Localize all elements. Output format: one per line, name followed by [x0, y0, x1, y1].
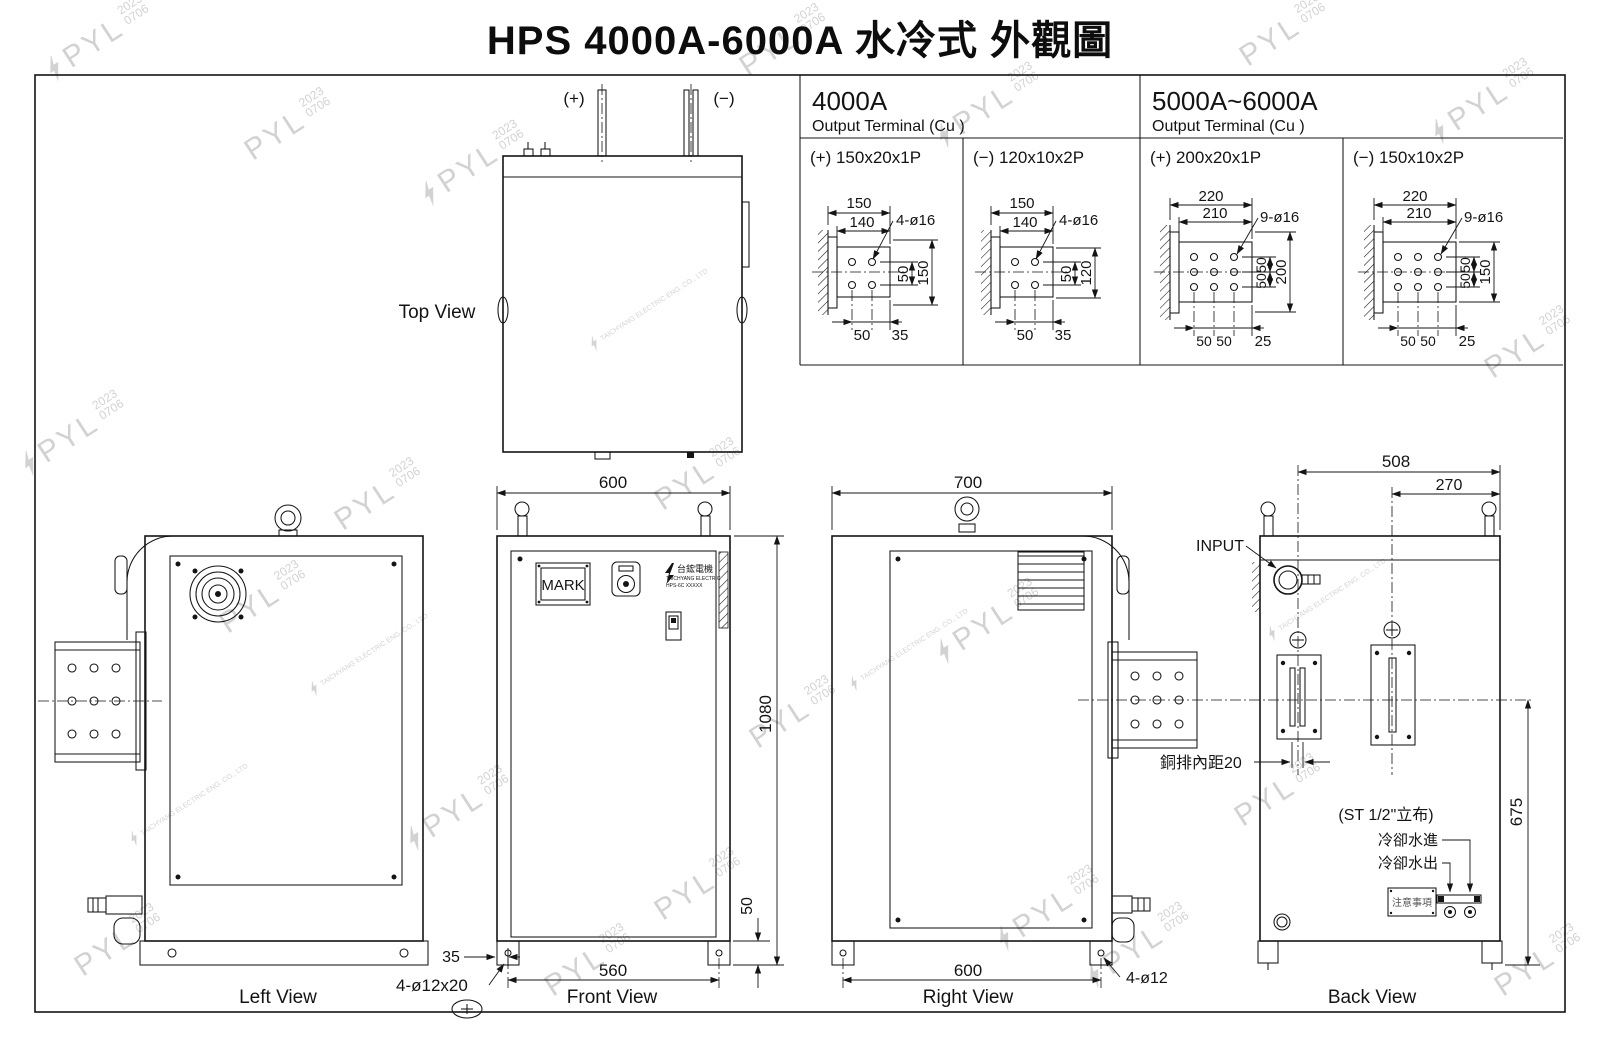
dim-hpitch2: 50 [1420, 333, 1436, 349]
dim-width2: 140 [849, 214, 874, 231]
model-5000a-subtitle: Output Terminal (Cu ) [1152, 118, 1305, 135]
dim-width: 700 [954, 473, 982, 492]
dim-bolt-span: 560 [599, 961, 627, 980]
dim-hedge: 25 [1459, 333, 1476, 350]
dim-width: 600 [599, 473, 627, 492]
dim-vpitch: 50 [1457, 257, 1473, 273]
holes-callout: 4-ø16 [896, 212, 935, 229]
dim-width2: 140 [1012, 214, 1037, 231]
output-terminal-plate [38, 632, 162, 770]
terminal-detail-4000a-negative: (−) 120x10x2P 150 140 4-ø16 50 [973, 148, 1101, 344]
model-5000a: 5000A~6000A [1152, 86, 1318, 116]
busbar-plate [1000, 247, 1053, 297]
left-view: Left View [38, 505, 428, 1008]
lifting-eye [275, 505, 301, 531]
foot [1258, 941, 1278, 963]
terminal-detail-4000a-positive: (+) 150x20x1P 150 140 4-ø16 50 [810, 148, 938, 344]
dim-width2: 210 [1202, 205, 1227, 222]
right-view: 700 [832, 473, 1534, 1008]
back-view-label: Back View [1328, 987, 1417, 1008]
wall-hatch [818, 230, 828, 315]
cabinet-top-outline [503, 156, 742, 452]
dim-voverall: 150 [1477, 259, 1494, 284]
dim-width: 220 [1402, 188, 1427, 205]
brand-name: 台鋐電機 [677, 563, 713, 574]
cell-label: (+) 200x20x1P [1150, 148, 1261, 167]
holes-callout: 9-ø16 [1464, 209, 1503, 226]
eye-bolt [1482, 502, 1496, 516]
dim-width2: 210 [1406, 205, 1431, 222]
top-view-label: Top View [399, 302, 476, 323]
pipe-note: (ST 1/2"立布) [1338, 806, 1433, 824]
front-edge-arc [127, 536, 173, 582]
terminal-detail-5000a-positive: (+) 200x20x1P 220 210 9-ø16 [1150, 148, 1299, 350]
input-port [1274, 566, 1320, 594]
dim-width: 150 [846, 195, 871, 212]
anchor-bolt [400, 949, 408, 957]
notice-plate: 注意事項 [1388, 888, 1436, 916]
dim-foot-offset: 35 [442, 949, 460, 966]
water-out-label: 冷卻水出 [1378, 855, 1438, 872]
louver-strip [1252, 562, 1260, 612]
dim-vpitch: 50 [1253, 257, 1269, 273]
dim-pos-edge: 270 [1436, 477, 1463, 494]
drawing-canvas: 4000A Output Terminal (Cu ) 5000A~6000A … [0, 0, 1600, 1047]
mark-plate: MARK [536, 563, 590, 605]
dim-hpitch2: 50 [1216, 333, 1232, 349]
left-view-label: Left View [239, 987, 317, 1008]
foot [1482, 941, 1502, 963]
dim-hpitch: 50 [854, 327, 871, 344]
water-ports [1437, 895, 1481, 918]
dim-hedge: 35 [892, 327, 909, 344]
cell-label: (−) 150x10x2P [1353, 148, 1464, 167]
front-edge-arc [1083, 536, 1129, 582]
door-bracket [115, 556, 127, 594]
anchor-bolt [168, 949, 176, 957]
back-view: 508 270 INPUT [1160, 452, 1540, 1008]
power-button[interactable] [612, 562, 640, 596]
brand-model: HPS-6C XXXXX [666, 583, 703, 589]
dim-vpitch2: 50 [1457, 273, 1473, 289]
dim-width: 150 [1009, 195, 1034, 212]
dim-terminal-height: 675 [1507, 798, 1526, 826]
dim-voverall: 150 [915, 260, 932, 285]
terminal-table: 4000A Output Terminal (Cu ) 5000A~6000A … [800, 75, 1563, 365]
front-view: 600 MARK 台鋐電機 TAICHYANG E [396, 473, 784, 1018]
dim-height: 1080 [756, 695, 775, 733]
drain-port [1274, 914, 1290, 930]
positive-label: (+) [563, 89, 584, 108]
wall-hatch [981, 230, 991, 315]
front-door [511, 551, 716, 937]
positive-terminal-marker [452, 1000, 482, 1018]
brand-company: TAICHYANG ELECTRIC [666, 576, 721, 582]
dim-hpitch: 50 [1400, 333, 1416, 349]
dim-hpitch: 50 [1017, 327, 1034, 344]
brand-nameplate: 台鋐電機 TAICHYANG ELECTRIC HPS-6C XXXXX [665, 563, 721, 589]
vent-grille [1018, 552, 1084, 610]
dim-neg-edge: 508 [1382, 452, 1410, 471]
foot-bolt-callout: 4-ø12 [1126, 970, 1168, 987]
dim-foot-height: 50 [739, 897, 756, 915]
input-label: INPUT [1196, 538, 1244, 555]
negative-label: (−) [713, 89, 734, 108]
door-bracket [1117, 556, 1129, 594]
busbar-plate [837, 247, 890, 297]
busbar-gap-label: 銅排內距20 [1160, 754, 1242, 772]
dim-voverall: 120 [1078, 260, 1095, 285]
eye-bolt [698, 502, 712, 516]
cabinet-outline [497, 536, 730, 941]
louver-strip [719, 552, 728, 628]
lifting-eye [955, 497, 979, 521]
water-fitting [1112, 896, 1150, 942]
foot-bolt-callout: 4-ø12x20 [396, 976, 468, 995]
wall-hatch [1364, 225, 1374, 320]
dim-vpitch2: 50 [1253, 273, 1269, 289]
top-view: (+) (−) Top View [399, 84, 749, 459]
cell-label: (+) 150x20x1P [810, 148, 921, 167]
dim-voverall: 200 [1273, 259, 1290, 284]
positive-busbar-slot-plate [1371, 645, 1415, 745]
cabinet-outline [145, 536, 423, 941]
dim-width: 220 [1198, 188, 1223, 205]
negative-busbar [693, 90, 698, 156]
cell-label: (−) 120x10x2P [973, 148, 1084, 167]
negative-busbar-slot-plate [1277, 655, 1321, 739]
eye-bolt [515, 502, 529, 516]
base [140, 941, 428, 965]
notice-label: 注意事項 [1392, 896, 1432, 909]
holes-callout: 9-ø16 [1260, 209, 1299, 226]
right-view-label: Right View [923, 987, 1014, 1008]
water-fitting [88, 896, 142, 944]
dim-bolt-span: 600 [954, 961, 982, 980]
water-in-label: 冷卻水進 [1378, 832, 1438, 849]
mark-label: MARK [541, 577, 584, 594]
front-view-label: Front View [567, 987, 658, 1008]
positive-terminal-symbol [1384, 622, 1400, 638]
drawing-sheet: PYL20230706 PYL20230706 PYL20230706 PYL2… [0, 0, 1600, 1047]
fan-icon [190, 566, 246, 622]
negative-busbar [684, 90, 689, 156]
dim-vpitch: 50 [1058, 266, 1075, 283]
wall-hatch [1160, 225, 1170, 320]
side-panel [170, 556, 402, 885]
dim-hedge: 25 [1255, 333, 1272, 350]
terminal-detail-5000a-negative: (−) 150x10x2P 220 210 9-ø16 [1353, 148, 1503, 350]
model-4000a: 4000A [812, 86, 888, 116]
rocker-switch[interactable] [666, 612, 681, 640]
dim-hedge: 35 [1055, 327, 1072, 344]
holes-callout: 4-ø16 [1059, 212, 1098, 229]
eye-bolt [1261, 502, 1275, 516]
model-4000a-subtitle: Output Terminal (Cu ) [812, 118, 965, 135]
dim-hpitch: 50 [1196, 333, 1212, 349]
hinge [742, 202, 749, 267]
dim-vpitch: 50 [895, 266, 912, 283]
